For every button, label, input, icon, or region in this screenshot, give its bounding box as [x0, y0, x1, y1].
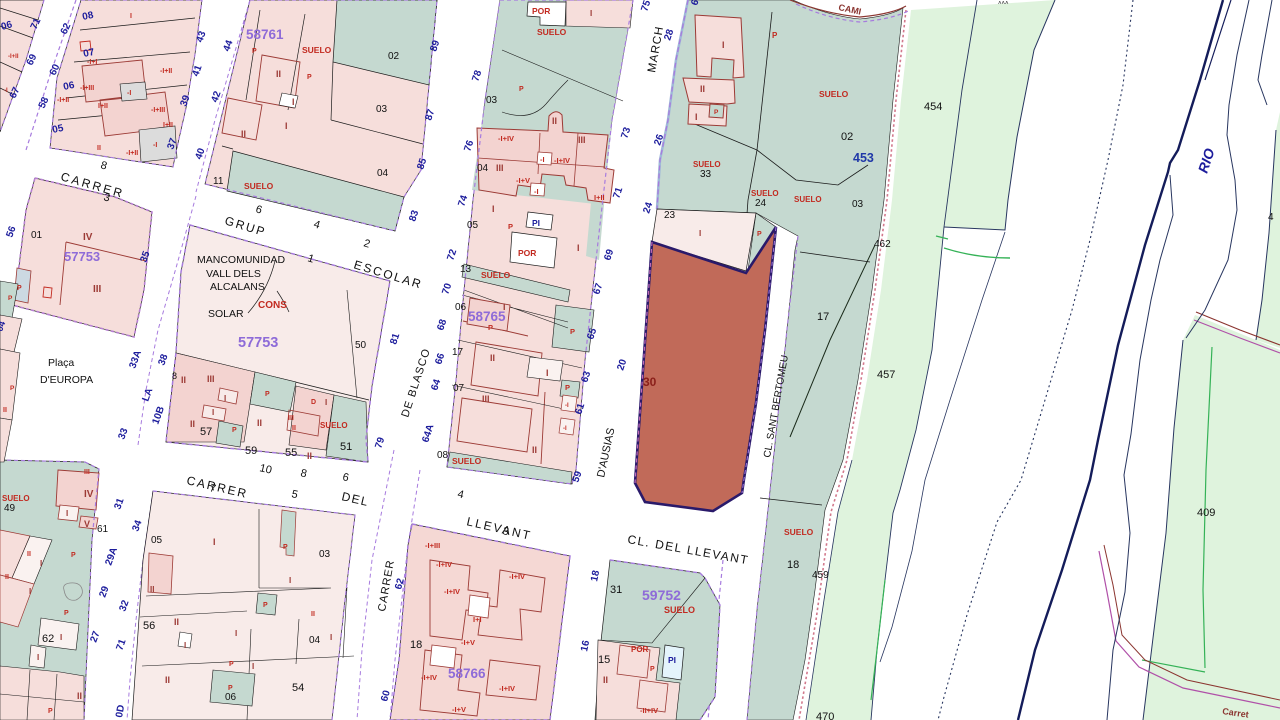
svg-text:-I+III: -I+III: [425, 541, 440, 550]
svg-text:-I+III: -I+III: [151, 107, 165, 114]
svg-text:I: I: [285, 121, 288, 131]
svg-text:62: 62: [42, 633, 54, 645]
svg-text:IV: IV: [83, 232, 93, 243]
svg-text:P: P: [64, 610, 69, 617]
svg-text:III: III: [496, 163, 504, 173]
svg-text:P: P: [228, 685, 233, 692]
svg-text:II: II: [700, 84, 705, 94]
svg-text:I: I: [546, 368, 549, 378]
svg-text:-I: -I: [153, 142, 157, 149]
svg-text:SUELO: SUELO: [819, 89, 849, 99]
svg-text:II: II: [532, 445, 537, 455]
svg-text:P: P: [519, 86, 524, 93]
svg-text:P: P: [8, 295, 13, 302]
svg-text:II: II: [27, 551, 31, 558]
svg-text:III: III: [578, 135, 586, 145]
svg-text:POR: POR: [518, 248, 536, 258]
svg-text:IV: IV: [84, 489, 94, 500]
svg-text:SUELO: SUELO: [244, 181, 274, 191]
svg-text:58766: 58766: [448, 666, 486, 681]
svg-text:-I+IV: -I+IV: [436, 560, 452, 569]
svg-text:P: P: [263, 602, 268, 609]
svg-text:31: 31: [610, 584, 622, 596]
svg-text:-I+V: -I+V: [452, 705, 466, 714]
svg-text:III: III: [288, 415, 294, 422]
svg-text:I+II: I+II: [98, 103, 108, 110]
svg-text:P: P: [48, 708, 53, 715]
svg-text:I: I: [330, 633, 332, 642]
svg-text:D'EUROPA: D'EUROPA: [40, 374, 93, 386]
svg-text:I: I: [212, 408, 214, 417]
svg-text:I: I: [325, 398, 327, 407]
svg-text:I+I: I+I: [473, 615, 482, 624]
svg-text:SUELO: SUELO: [784, 527, 814, 537]
svg-text:I: I: [590, 9, 592, 18]
svg-text:II: II: [307, 451, 312, 461]
svg-text:-I+III: -I+III: [80, 85, 94, 92]
svg-text:-I: -I: [563, 426, 567, 432]
svg-text:59: 59: [245, 445, 257, 457]
svg-text:P: P: [757, 231, 762, 238]
svg-text:I: I: [235, 629, 237, 638]
svg-text:P: P: [265, 391, 270, 398]
svg-text:I: I: [699, 229, 701, 238]
svg-text:P: P: [714, 109, 719, 116]
svg-text:P: P: [283, 544, 288, 551]
svg-text:P: P: [307, 74, 312, 81]
svg-text:PI: PI: [532, 218, 540, 228]
svg-text:02: 02: [841, 131, 853, 143]
svg-text:SUELO: SUELO: [664, 605, 695, 615]
svg-text:P: P: [229, 661, 234, 668]
svg-text:23: 23: [664, 210, 676, 221]
svg-text:I: I: [29, 587, 31, 596]
svg-text:05: 05: [467, 220, 479, 231]
svg-text:II: II: [165, 675, 170, 685]
svg-text:Plaça: Plaça: [48, 357, 74, 369]
svg-text:03: 03: [852, 199, 864, 210]
svg-text:-I+IV: -I+IV: [444, 587, 460, 596]
svg-text:I: I: [224, 394, 226, 403]
svg-text:07: 07: [453, 383, 465, 394]
svg-text:06: 06: [455, 302, 467, 313]
svg-text:I: I: [184, 641, 186, 650]
svg-text:P: P: [10, 385, 15, 392]
svg-text:454: 454: [924, 101, 942, 113]
svg-text:18: 18: [787, 559, 799, 571]
svg-text:56: 56: [143, 620, 155, 632]
svg-text:SUELO: SUELO: [302, 45, 332, 55]
svg-text:V: V: [84, 519, 90, 529]
svg-text:11: 11: [213, 176, 224, 187]
svg-text:-I+II: -I+II: [57, 97, 69, 104]
svg-text:I: I: [289, 576, 291, 585]
svg-text:-II+IV: -II+IV: [640, 706, 658, 715]
svg-text:409: 409: [1197, 507, 1215, 519]
svg-text:462: 462: [874, 239, 891, 250]
svg-text:VALL DELS: VALL DELS: [206, 268, 261, 280]
svg-text:III: III: [93, 284, 102, 295]
svg-text:06: 06: [225, 692, 237, 703]
svg-text:I: I: [37, 653, 39, 662]
svg-text:04: 04: [377, 168, 389, 179]
svg-text:-I+II: -I+II: [160, 68, 172, 75]
svg-text:I: I: [40, 559, 42, 568]
svg-text:55: 55: [285, 447, 297, 459]
svg-text:P: P: [488, 323, 493, 332]
svg-text:-I: -I: [565, 403, 569, 409]
svg-text:I: I: [130, 13, 132, 20]
svg-text:-I+IV: -I+IV: [498, 134, 514, 143]
svg-text:51: 51: [340, 441, 352, 453]
svg-text:13: 13: [460, 264, 472, 275]
svg-text:I+II: I+II: [594, 193, 605, 202]
svg-text:II: II: [97, 145, 101, 152]
svg-text:II: II: [190, 419, 195, 429]
svg-text:-I+IV: -I+IV: [509, 572, 525, 581]
svg-text:SUELO: SUELO: [693, 160, 721, 169]
svg-text:04: 04: [477, 163, 489, 174]
svg-text:30: 30: [643, 375, 657, 389]
svg-text:I: I: [292, 97, 295, 107]
svg-text:III: III: [207, 374, 215, 384]
svg-text:03: 03: [319, 549, 331, 560]
svg-text:SUELO: SUELO: [537, 27, 567, 37]
svg-text:I: I: [722, 40, 725, 50]
svg-text:54: 54: [292, 682, 304, 694]
svg-text:II: II: [257, 418, 262, 428]
svg-text:II: II: [292, 425, 296, 432]
svg-text:I: I: [577, 243, 580, 253]
svg-text:17: 17: [817, 311, 829, 323]
svg-text:P: P: [71, 552, 76, 559]
svg-text:457: 457: [877, 369, 895, 381]
svg-text:-I: -I: [534, 187, 539, 196]
svg-text:4: 4: [1268, 212, 1274, 223]
svg-text:I: I: [492, 204, 495, 214]
svg-text:-I: -I: [4, 88, 8, 94]
svg-text:I: I: [695, 112, 698, 122]
svg-text:SUELO: SUELO: [794, 195, 822, 204]
svg-text:P: P: [508, 222, 513, 231]
svg-text:POR: POR: [532, 6, 550, 16]
svg-text:P: P: [772, 31, 778, 40]
svg-text:PI: PI: [668, 655, 676, 665]
svg-text:SUELO: SUELO: [481, 270, 511, 280]
svg-text:0D: 0D: [114, 704, 127, 719]
svg-text:02: 02: [388, 51, 400, 62]
svg-text:459: 459: [812, 570, 829, 581]
svg-text:I+II: I+II: [163, 122, 173, 129]
svg-text:P: P: [565, 383, 570, 392]
svg-text:57: 57: [200, 426, 212, 438]
svg-text:50: 50: [355, 340, 367, 351]
svg-text:SUELO: SUELO: [452, 456, 482, 466]
svg-text:58761: 58761: [246, 27, 284, 42]
svg-text:MANCOMUNIDAD: MANCOMUNIDAD: [197, 254, 285, 266]
svg-text:II: II: [181, 375, 186, 385]
svg-text:-I+V: -I+V: [461, 638, 475, 647]
svg-text:05: 05: [151, 535, 163, 546]
svg-text:CONS: CONS: [258, 300, 287, 311]
svg-text:I: I: [66, 509, 68, 518]
svg-text:POR: POR: [631, 645, 649, 654]
svg-text:01: 01: [31, 230, 43, 241]
svg-text:08: 08: [437, 450, 449, 461]
svg-text:61: 61: [97, 524, 109, 535]
svg-text:SUELO: SUELO: [2, 494, 30, 503]
svg-text:-I: -I: [540, 155, 545, 164]
svg-text:24: 24: [755, 198, 767, 209]
svg-text:-I+V: -I+V: [516, 176, 530, 185]
svg-text:II: II: [552, 116, 557, 126]
svg-text:8: 8: [172, 371, 177, 381]
svg-text:18: 18: [410, 639, 422, 651]
svg-text:33: 33: [700, 169, 712, 180]
svg-text:04: 04: [309, 635, 321, 646]
svg-text:II: II: [490, 353, 495, 363]
svg-text:-I+IV: -I+IV: [421, 673, 437, 682]
svg-text:II: II: [3, 407, 7, 414]
svg-text:ALCALANS: ALCALANS: [210, 281, 265, 293]
svg-text:-I+IV: -I+IV: [499, 684, 515, 693]
svg-text:P: P: [252, 48, 257, 55]
svg-text:-I: -I: [127, 90, 131, 97]
svg-text:P: P: [650, 666, 655, 673]
svg-text:II: II: [150, 585, 154, 594]
svg-text:I: I: [213, 537, 216, 547]
svg-text:II: II: [311, 611, 315, 618]
svg-text:SOLAR: SOLAR: [208, 308, 244, 320]
svg-text:P: P: [570, 327, 575, 336]
svg-text:59752: 59752: [642, 587, 681, 603]
svg-text:03: 03: [376, 104, 388, 115]
svg-text:P: P: [17, 285, 22, 292]
svg-text:II: II: [77, 691, 82, 701]
svg-text:II: II: [603, 675, 608, 685]
svg-text:P: P: [232, 427, 237, 434]
svg-text:57753: 57753: [64, 249, 100, 264]
svg-text:˄˄˄: ˄˄˄: [998, 1, 1009, 7]
svg-text:I: I: [60, 633, 62, 642]
svg-text:I: I: [252, 662, 254, 671]
svg-text:SUELO: SUELO: [751, 189, 779, 198]
svg-text:II: II: [241, 129, 246, 139]
svg-text:II: II: [5, 574, 9, 581]
svg-text:II: II: [174, 617, 179, 627]
svg-text:17: 17: [452, 347, 464, 358]
svg-text:SUELO: SUELO: [320, 421, 348, 430]
svg-text:-I+IV: -I+IV: [554, 156, 570, 165]
svg-text:49: 49: [4, 503, 16, 514]
svg-text:470: 470: [816, 711, 834, 720]
svg-text:-I+II: -I+II: [126, 150, 138, 157]
svg-text:15: 15: [598, 654, 610, 666]
svg-text:03: 03: [486, 95, 498, 106]
svg-text:453: 453: [853, 151, 874, 165]
svg-text:II: II: [276, 69, 281, 79]
svg-text:58765: 58765: [468, 309, 506, 324]
svg-text:D: D: [311, 399, 316, 406]
svg-text:57753: 57753: [238, 335, 278, 351]
svg-text:III: III: [84, 469, 90, 476]
svg-text:III: III: [482, 394, 490, 404]
svg-text:-I+II: -I+II: [8, 54, 19, 60]
svg-text:-I+I: -I+I: [87, 59, 97, 66]
